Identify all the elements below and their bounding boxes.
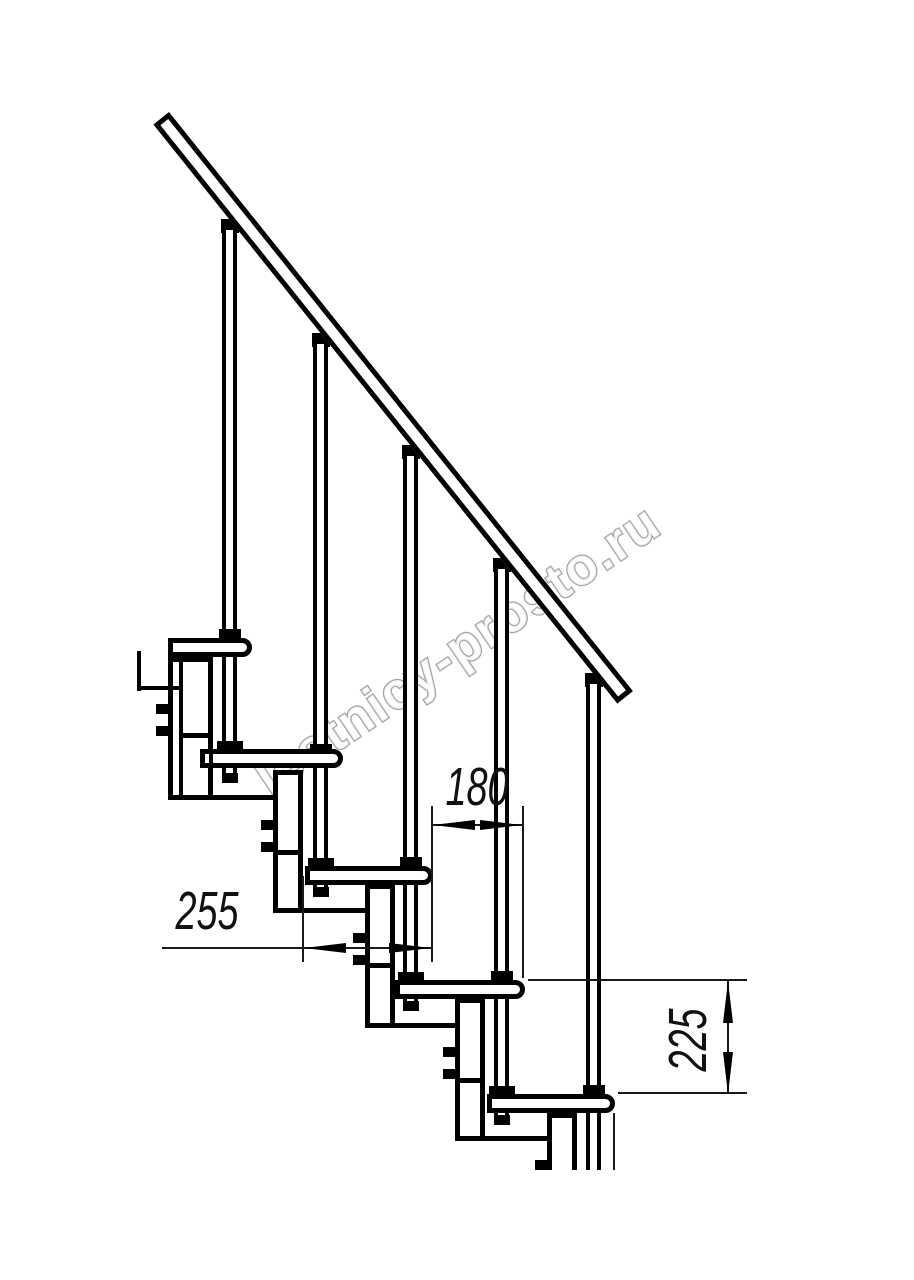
baluster-foot-collar [583,1085,605,1094]
rod-lower-foot [217,741,243,749]
dimension-label-rise: 225 [657,1008,719,1071]
support-column-3 [365,884,395,1028]
dimension-arrow-left-icon [304,943,346,953]
connector-tab [443,1069,456,1079]
wall-bracket-horizontal [137,686,183,690]
connector-tab [535,1160,548,1170]
connector-tab [156,726,169,736]
extension-line [613,1113,615,1170]
dimension-arrow-down-icon [723,1052,733,1094]
rod-nut [222,773,238,783]
connector-tab [353,933,366,943]
baluster-rod-4 [494,569,509,1124]
dimension-arrow-left-icon [433,820,475,830]
baluster-rod-3 [403,456,418,1010]
column-base-flange [168,795,273,800]
support-column-2 [273,770,303,913]
extension-line [522,806,524,978]
column-joint-line [365,963,395,968]
dimension-arrow-right-icon [389,943,431,953]
support-column-5 [547,1113,577,1170]
column-joint-line [273,850,303,855]
connector-tab [261,820,274,830]
column-base-flange [365,1023,457,1028]
tread-3 [305,866,433,885]
wall-bracket-vertical [137,651,141,691]
dimension-label-run: 180 [445,756,508,818]
baluster-foot-collar [310,744,332,753]
support-column-1 [168,657,213,800]
rod-lower-foot [308,858,334,866]
baluster-foot-collar [400,857,422,866]
tread-4 [395,980,525,999]
column-edge-line [209,749,213,800]
column-inner-plate-line [179,657,183,800]
tread-1 [168,638,252,657]
staircase-technical-drawing: lestnicy-prosto.ru [0,0,914,1280]
column-base-flange [455,1136,549,1141]
extension-line [302,876,304,962]
rod-nut [403,1001,419,1011]
rod-lower-foot [398,972,424,980]
extension-line [431,806,433,962]
baluster-foot-collar [219,629,241,638]
tread-5 [487,1094,615,1113]
column-base-flange [273,908,368,913]
baluster-rod-1 [222,230,237,783]
dimension-label-depth: 255 [175,880,238,942]
baluster-foot-collar [491,971,513,980]
baluster-rod-2 [313,344,328,896]
connector-tab [353,955,366,965]
column-joint-line [183,733,210,738]
connector-tab [443,1047,456,1057]
rod-nut [313,887,329,897]
rod-lower-foot [489,1086,515,1094]
rod-nut [494,1115,510,1125]
column-joint-line [455,1078,485,1083]
connector-tab [156,704,169,714]
dimension-arrow-up-icon [723,981,733,1023]
connector-tab [261,842,274,852]
support-column-4 [455,998,485,1141]
dimension-arrow-right-icon [480,820,522,830]
extension-line [528,979,747,981]
extension-line [618,1092,747,1094]
